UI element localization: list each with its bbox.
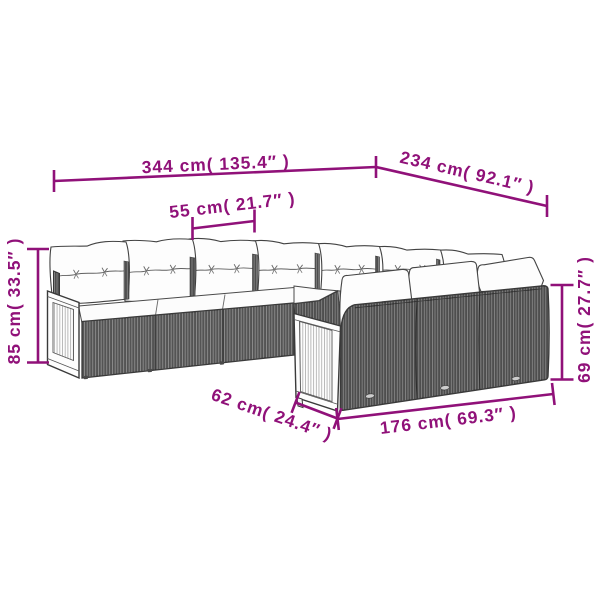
svg-text:176 cm( 69.3″ ): 176 cm( 69.3″ ) [379,402,518,438]
svg-text:344 cm( 135.4″ ): 344 cm( 135.4″ ) [141,151,290,177]
svg-text:85 cm( 33.5″ ): 85 cm( 33.5″ ) [4,238,24,365]
svg-text:55 cm( 21.7″ ): 55 cm( 21.7″ ) [168,188,296,222]
svg-text:234 cm( 92.1″ ): 234 cm( 92.1″ ) [398,147,536,197]
svg-text:69 cm( 27.7″ ): 69 cm( 27.7″ ) [574,256,594,383]
